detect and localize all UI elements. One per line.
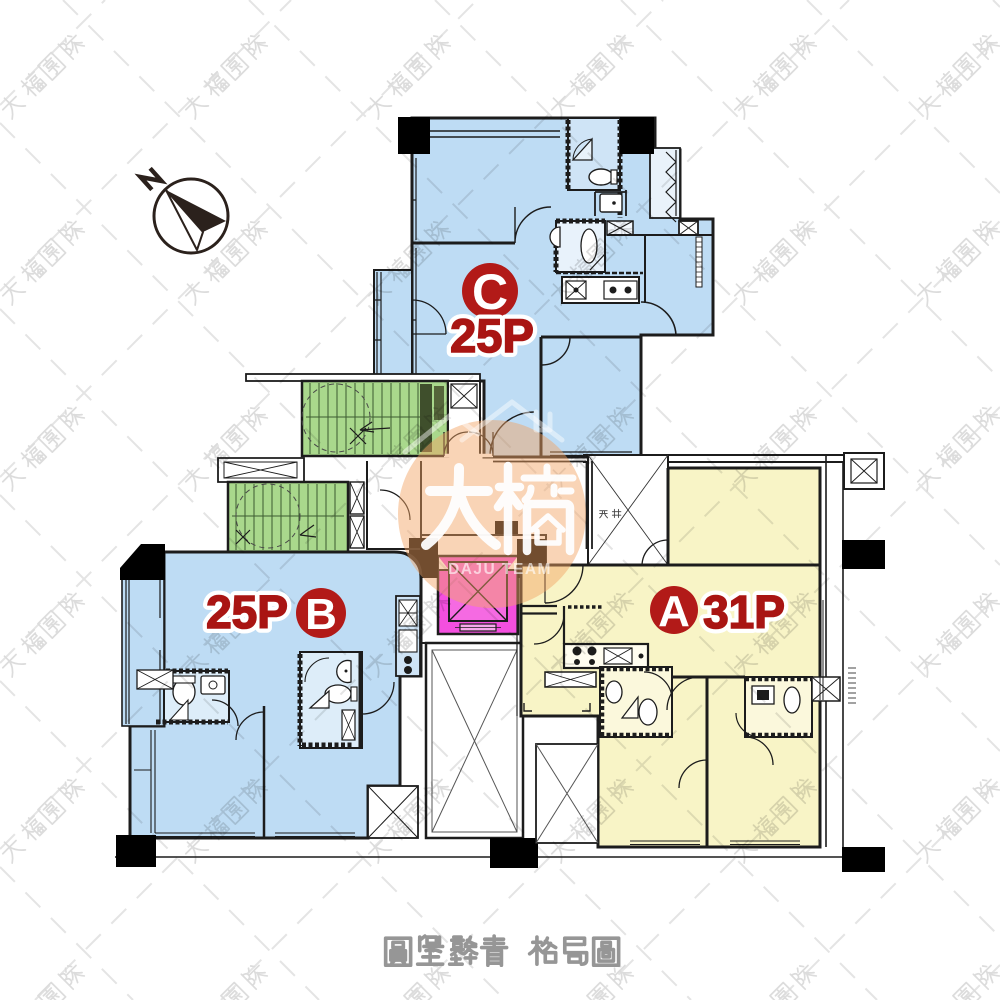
svg-text:A: A xyxy=(658,587,690,636)
svg-text:25P: 25P xyxy=(206,586,288,638)
svg-text:31P: 31P xyxy=(703,586,785,638)
svg-text:B: B xyxy=(305,590,337,639)
svg-text:25P: 25P xyxy=(450,309,534,362)
svg-text:DAJU TEAM: DAJU TEAM xyxy=(448,561,552,578)
